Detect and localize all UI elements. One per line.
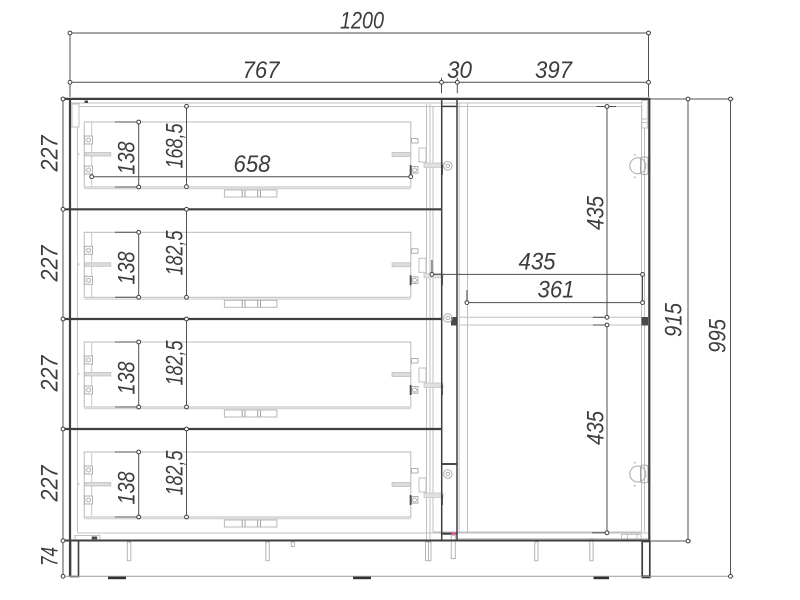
svg-text:138: 138 xyxy=(114,251,141,285)
svg-text:182,5: 182,5 xyxy=(162,230,189,275)
svg-text:658: 658 xyxy=(234,151,272,178)
svg-text:995: 995 xyxy=(705,318,732,353)
svg-text:915: 915 xyxy=(661,302,688,337)
svg-text:227: 227 xyxy=(37,464,64,502)
svg-text:74: 74 xyxy=(37,547,64,566)
svg-text:435: 435 xyxy=(583,410,610,445)
svg-text:435: 435 xyxy=(583,195,610,230)
svg-text:138: 138 xyxy=(114,361,141,395)
svg-text:138: 138 xyxy=(114,141,141,175)
svg-text:361: 361 xyxy=(538,277,575,304)
svg-text:227: 227 xyxy=(37,244,64,282)
svg-text:138: 138 xyxy=(114,471,141,505)
svg-text:168,5: 168,5 xyxy=(162,123,189,168)
svg-text:435: 435 xyxy=(519,249,557,276)
svg-text:227: 227 xyxy=(37,354,64,392)
svg-text:1200: 1200 xyxy=(340,8,385,35)
svg-text:227: 227 xyxy=(37,134,64,172)
svg-text:767: 767 xyxy=(243,57,282,84)
svg-text:182,5: 182,5 xyxy=(162,450,189,495)
svg-text:30: 30 xyxy=(447,57,473,84)
svg-text:182,5: 182,5 xyxy=(162,340,189,385)
svg-text:397: 397 xyxy=(535,57,574,84)
